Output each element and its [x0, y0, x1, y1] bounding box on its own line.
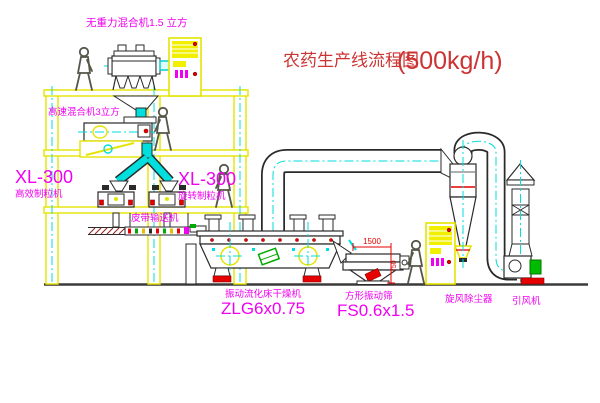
indicator-lamp	[193, 42, 197, 46]
label-gravity-mixer: 无重力混合机1.5 立方	[86, 16, 188, 29]
indicator-display	[431, 258, 444, 266]
label-granulator-left-model: XL-300	[15, 167, 73, 187]
column-left	[46, 90, 58, 284]
control-cabinet-roof	[169, 38, 201, 96]
worker-figure	[76, 48, 92, 90]
worker-figure	[408, 241, 424, 283]
dimension-height: 750	[391, 260, 398, 272]
fan-base	[521, 278, 544, 284]
high-speed-mixer	[78, 117, 158, 158]
y-splitter-chute	[102, 158, 186, 191]
inlet-support	[186, 244, 196, 284]
fan-motor	[530, 260, 541, 274]
screen-vibrator	[400, 256, 409, 269]
control-cabinet-ground	[426, 223, 455, 284]
vibrating-screen: 1500 750	[343, 237, 409, 285]
drawing-capacity: (500kg/h)	[397, 47, 503, 75]
label-dryer-model: ZLG6x0.75	[221, 299, 305, 318]
label-granulator-center-model: XL-300	[178, 169, 236, 189]
label-cyclone: 旋风除尘器	[445, 293, 493, 305]
roof-slab	[44, 90, 248, 96]
label-screen-model: FS0.6x1.5	[337, 301, 415, 320]
label-belt-conveyor: 皮带输送机	[131, 212, 179, 224]
label-granulator-left-name: 高效制粒机	[15, 188, 63, 200]
dimension-length: 1500	[363, 237, 381, 246]
inlet-fitting	[184, 227, 189, 234]
label-granulator-center-name: 旋转制粒机	[178, 190, 226, 202]
label-fan: 引风机	[512, 295, 541, 307]
process-flow-diagram: 1500 750	[0, 0, 600, 403]
label-high-speed-mixer: 高速混合机3立方	[48, 106, 120, 118]
indicator-lamp	[447, 260, 451, 264]
indicator-lamp	[447, 228, 451, 232]
cad-drawing-canvas: 1500 750	[0, 0, 600, 403]
floor-hatch	[88, 228, 125, 235]
indicator-display	[175, 70, 188, 78]
indicator-lamp	[193, 72, 197, 76]
